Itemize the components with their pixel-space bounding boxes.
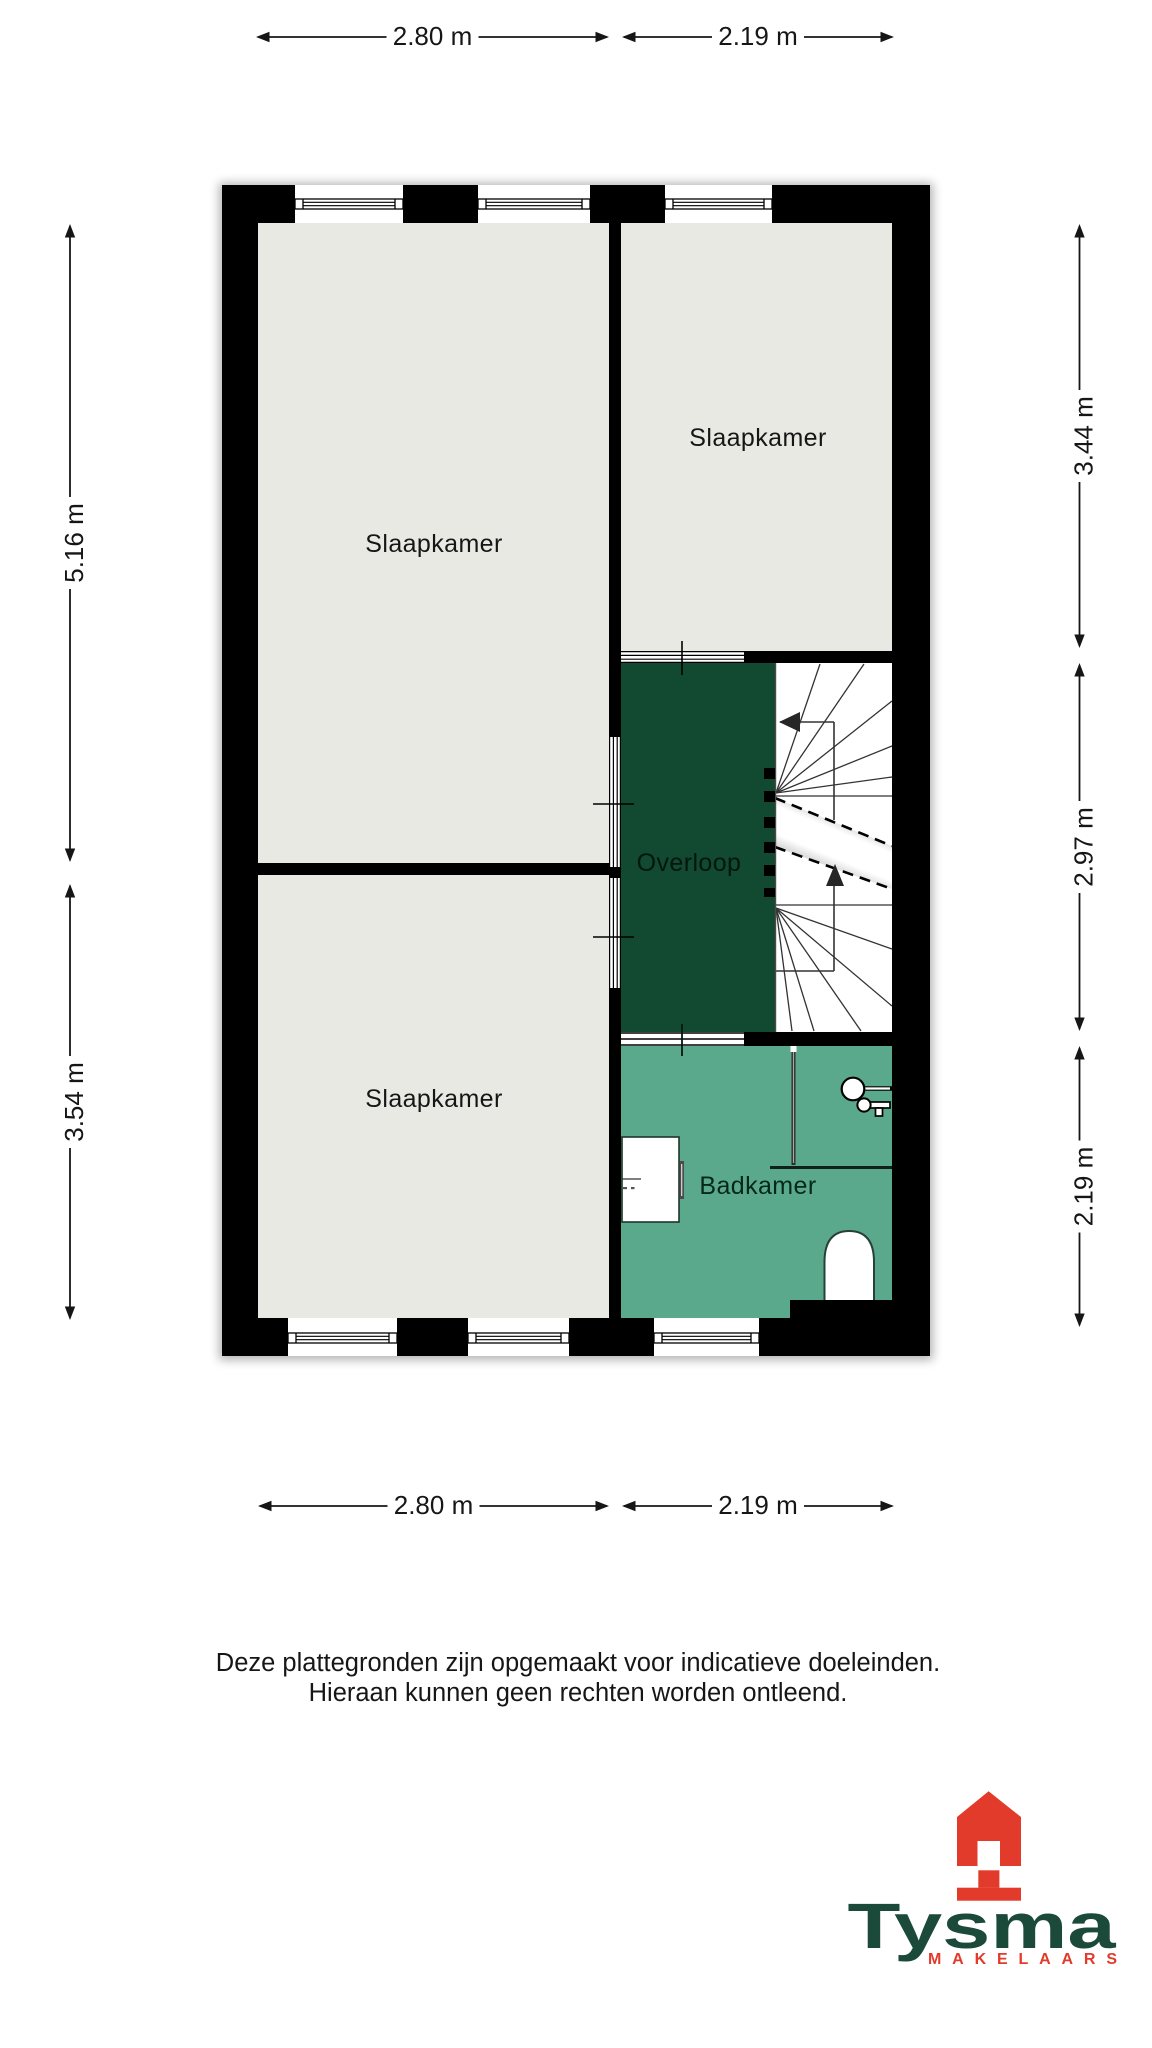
svg-text:Slaapkamer: Slaapkamer bbox=[365, 530, 502, 558]
svg-text:MAKELAARS: MAKELAARS bbox=[928, 1951, 1117, 1968]
svg-text:2.80 m: 2.80 m bbox=[393, 21, 473, 51]
svg-text:3.44 m: 3.44 m bbox=[1069, 396, 1099, 476]
svg-text:Hieraan kunnen geen rechten wo: Hieraan kunnen geen rechten worden ontle… bbox=[309, 1679, 848, 1707]
svg-text:2.19 m: 2.19 m bbox=[718, 21, 798, 51]
svg-text:Deze plattegronden zijn opgema: Deze plattegronden zijn opgemaakt voor i… bbox=[216, 1649, 940, 1677]
svg-text:Badkamer: Badkamer bbox=[699, 1172, 816, 1200]
svg-text:3.54 m: 3.54 m bbox=[59, 1062, 89, 1142]
svg-text:2.80 m: 2.80 m bbox=[394, 1490, 474, 1520]
svg-text:Slaapkamer: Slaapkamer bbox=[689, 424, 826, 452]
svg-text:2.97 m: 2.97 m bbox=[1069, 807, 1099, 887]
svg-text:Overloop: Overloop bbox=[637, 849, 742, 877]
svg-text:Slaapkamer: Slaapkamer bbox=[365, 1085, 502, 1113]
svg-text:5.16 m: 5.16 m bbox=[59, 503, 89, 583]
svg-text:2.19 m: 2.19 m bbox=[718, 1490, 798, 1520]
svg-text:2.19 m: 2.19 m bbox=[1069, 1147, 1099, 1227]
